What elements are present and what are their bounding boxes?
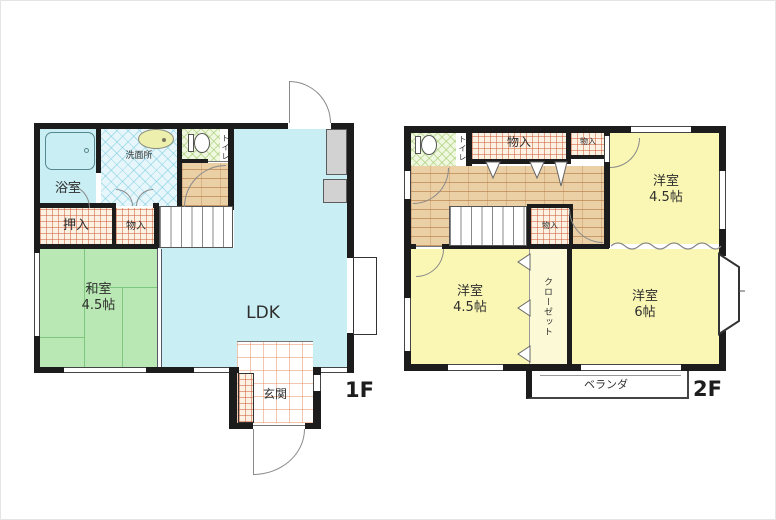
veranda-rail-line bbox=[540, 375, 681, 376]
stairs-1f bbox=[159, 206, 233, 248]
floor-label-2f: 2F bbox=[693, 377, 722, 401]
stairs-2f bbox=[449, 206, 527, 246]
inner-wall bbox=[34, 244, 158, 249]
outer-wall bbox=[34, 367, 64, 373]
inner-wall bbox=[527, 204, 531, 246]
closet-door-marks bbox=[517, 299, 531, 317]
floor-plan-canvas: 浴室 洗面所 トイレ 押入 物入 和室 4.5帖 LDK 玄関 1F bbox=[0, 0, 776, 520]
folding-door-marks bbox=[485, 161, 501, 179]
inner-wall bbox=[177, 123, 182, 208]
outer-wall bbox=[404, 126, 411, 171]
kitchen-counter bbox=[326, 129, 347, 175]
inner-wall bbox=[567, 249, 572, 364]
inner-wall bbox=[404, 244, 416, 249]
inner-wall bbox=[112, 205, 116, 246]
label-toilet-2f: トイレ bbox=[457, 130, 468, 166]
toilet-icon-2f bbox=[415, 134, 439, 156]
window bbox=[313, 375, 321, 391]
window bbox=[448, 364, 503, 371]
genkan-step-line bbox=[237, 341, 313, 342]
window bbox=[719, 171, 726, 229]
label-mono-1f: 物入 bbox=[118, 221, 154, 234]
outer-wall bbox=[404, 126, 631, 133]
sliding-door bbox=[157, 249, 162, 367]
label-washroom: 洗面所 bbox=[106, 151, 172, 162]
closet-door-marks bbox=[517, 253, 531, 271]
label-mono-small: 物入 bbox=[575, 137, 601, 147]
label-mono-mid: 物入 bbox=[535, 221, 565, 231]
label-washitsu: 和室 4.5帖 bbox=[51, 282, 146, 315]
outer-wall bbox=[347, 123, 354, 258]
inner-wall bbox=[527, 204, 573, 208]
label-west-ne: 洋室 4.5帖 bbox=[621, 174, 711, 207]
window bbox=[319, 367, 347, 373]
window bbox=[34, 253, 40, 336]
tatami-line bbox=[40, 337, 84, 338]
outer-wall bbox=[404, 364, 448, 371]
outer-wall bbox=[34, 123, 288, 129]
window bbox=[631, 126, 691, 133]
label-west-se: 洋室 6帖 bbox=[600, 289, 690, 322]
label-toilet-1f: トイレ bbox=[220, 129, 231, 165]
bay-window-2f bbox=[719, 251, 745, 337]
label-closet: クローゼット bbox=[541, 261, 554, 353]
bay-window-1f bbox=[353, 257, 377, 335]
floor-label-1f: 1F bbox=[345, 378, 374, 402]
back-door-arc bbox=[289, 81, 331, 123]
genkan-wall bbox=[229, 423, 253, 429]
inner-wall bbox=[96, 123, 101, 173]
outer-wall bbox=[503, 364, 581, 371]
outer-wall bbox=[719, 331, 726, 371]
label-ldk: LDK bbox=[231, 303, 295, 324]
window bbox=[404, 298, 411, 351]
window bbox=[64, 367, 146, 373]
entry-door-arc bbox=[253, 429, 305, 475]
label-mono-large: 物入 bbox=[498, 135, 540, 150]
window bbox=[581, 364, 681, 371]
label-genkan: 玄関 bbox=[244, 387, 306, 402]
wavy-boundary bbox=[610, 242, 722, 250]
label-west-sw: 洋室 4.5帖 bbox=[425, 284, 515, 317]
window bbox=[404, 171, 411, 199]
sink-icon bbox=[138, 129, 174, 149]
toilet-icon-1f bbox=[188, 132, 212, 154]
outer-wall bbox=[347, 333, 354, 373]
genkan-wall bbox=[305, 423, 321, 429]
genkan-wall bbox=[229, 367, 237, 429]
folding-door-marks bbox=[554, 161, 568, 187]
door-threshold bbox=[253, 425, 305, 426]
closet-door-marks bbox=[517, 345, 531, 363]
door-threshold bbox=[416, 246, 442, 247]
inner-wall bbox=[182, 159, 208, 163]
label-bathroom: 浴室 bbox=[40, 181, 96, 197]
label-veranda: ベランダ bbox=[571, 378, 641, 392]
folding-door-marks bbox=[529, 161, 545, 179]
label-oshiire: 押入 bbox=[46, 218, 106, 234]
bathtub-icon bbox=[45, 132, 95, 170]
outer-wall bbox=[719, 126, 726, 171]
kitchen-unit bbox=[323, 179, 347, 203]
window bbox=[194, 367, 231, 373]
outer-wall bbox=[146, 367, 194, 373]
